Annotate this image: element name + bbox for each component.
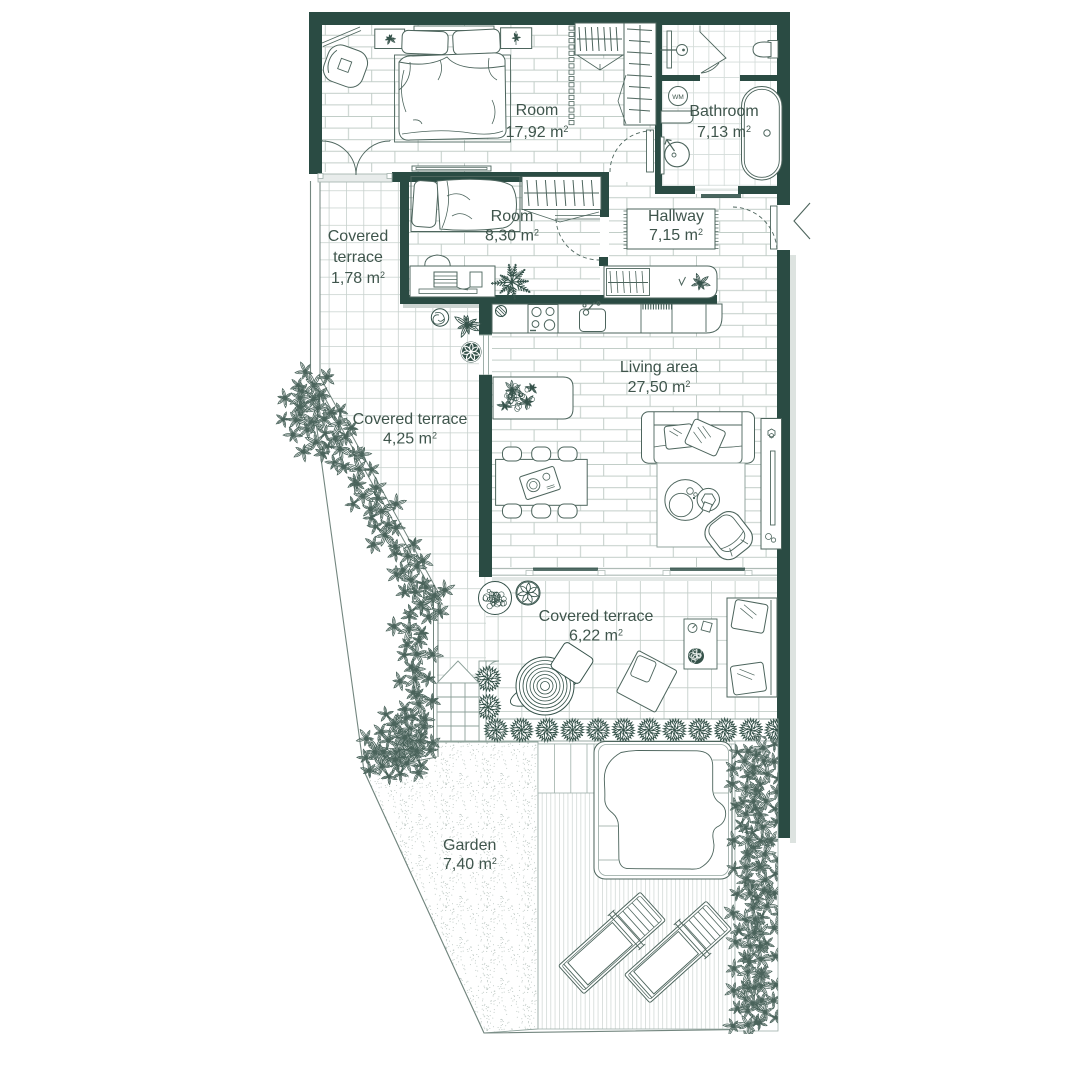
svg-text:Garden: Garden: [443, 837, 496, 854]
svg-text:7,13 m2: 7,13 m2: [697, 124, 751, 141]
svg-text:Living area: Living area: [620, 359, 698, 376]
svg-text:27,50 m2: 27,50 m2: [628, 379, 691, 396]
svg-text:Hallway: Hallway: [648, 208, 704, 225]
svg-text:Covered terrace: Covered terrace: [539, 608, 654, 625]
svg-text:1,78 m2: 1,78 m2: [331, 270, 385, 287]
svg-text:Bathroom: Bathroom: [689, 103, 758, 120]
svg-text:8,30 m2: 8,30 m2: [485, 228, 539, 245]
svg-text:7,40 m2: 7,40 m2: [443, 856, 497, 873]
svg-text:Room: Room: [491, 208, 534, 225]
svg-text:7,15 m2: 7,15 m2: [649, 227, 703, 244]
svg-text:terrace: terrace: [333, 249, 383, 266]
svg-text:6,22 m2: 6,22 m2: [569, 628, 623, 645]
svg-text:4,25 m2: 4,25 m2: [383, 431, 437, 448]
svg-text:WM: WM: [672, 94, 684, 101]
svg-text:17,92 m2: 17,92 m2: [506, 124, 569, 141]
svg-text:Covered: Covered: [328, 228, 388, 245]
svg-text:Covered terrace: Covered terrace: [353, 411, 468, 428]
svg-text:Room: Room: [516, 102, 559, 119]
